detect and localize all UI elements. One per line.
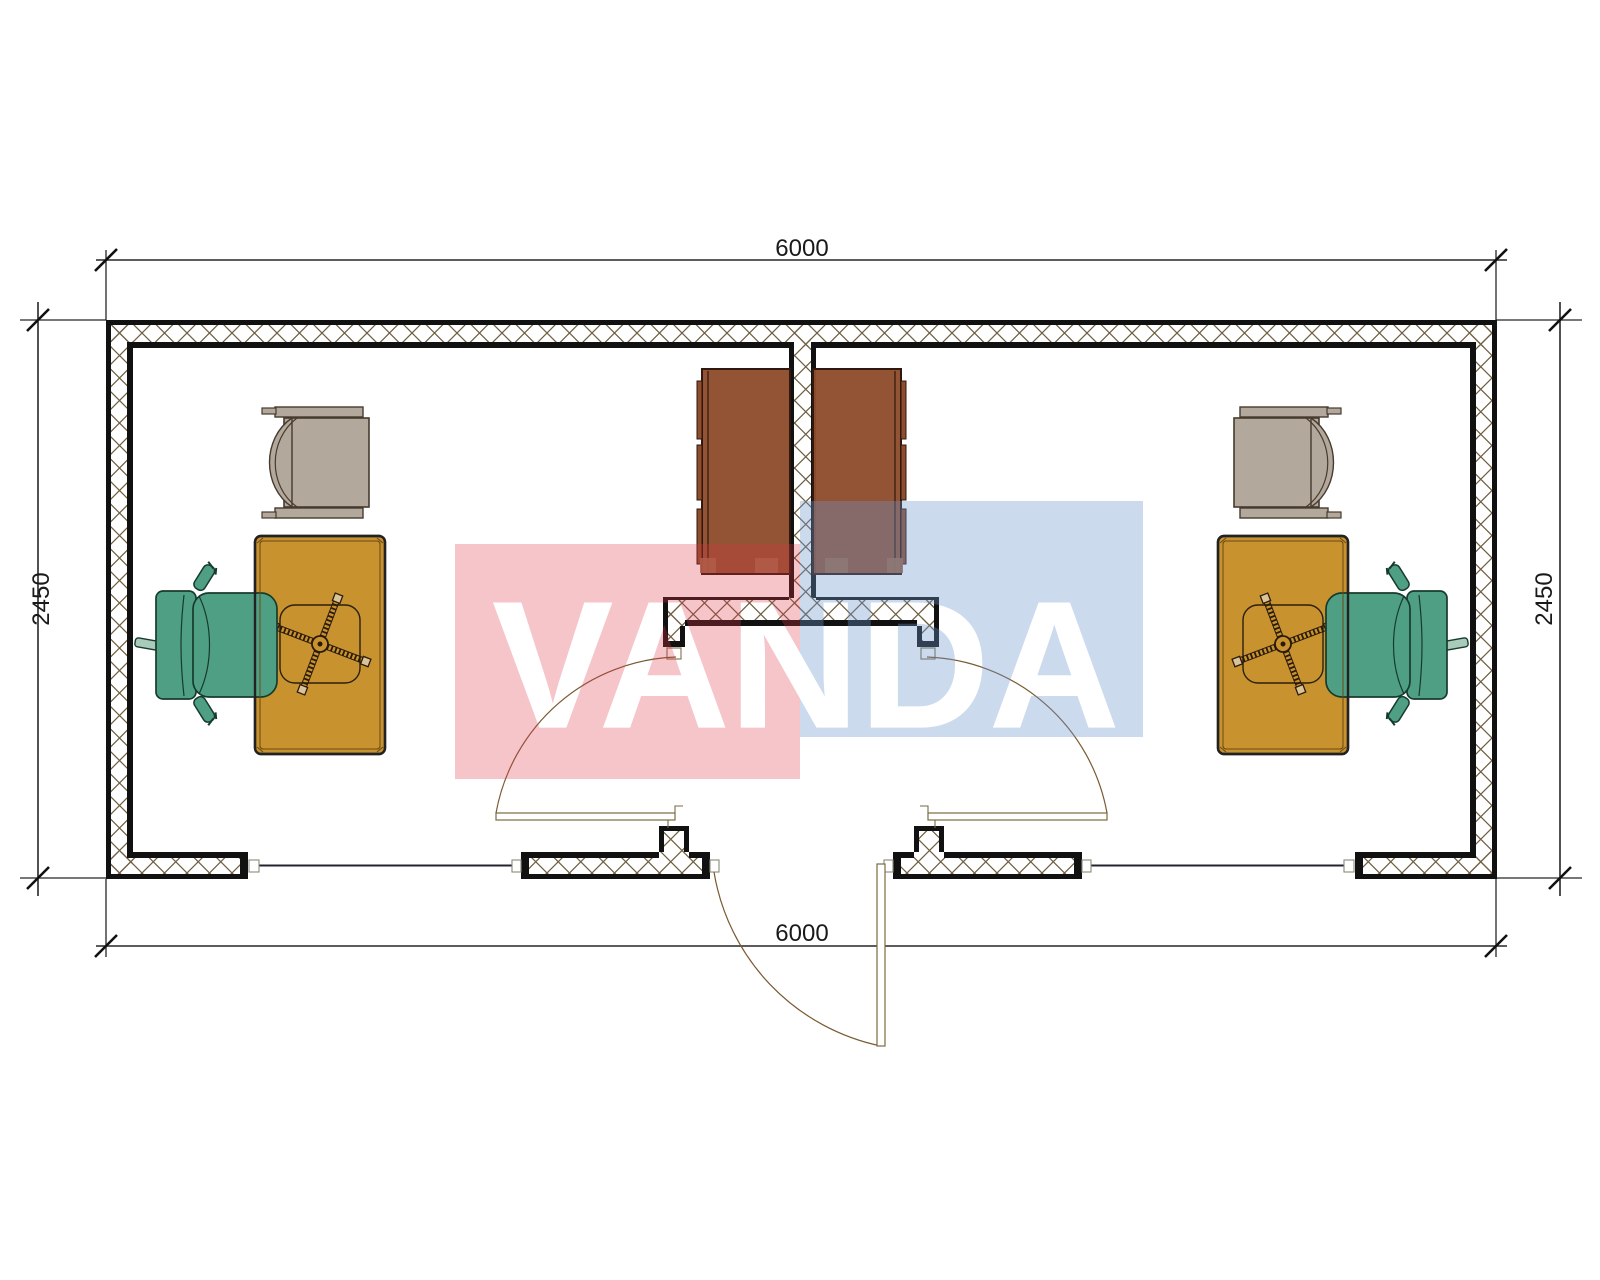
svg-text:2450: 2450: [28, 572, 55, 625]
svg-text:2450: 2450: [1531, 572, 1558, 625]
svg-text:6000: 6000: [775, 920, 828, 947]
svg-text:6000: 6000: [775, 235, 828, 262]
